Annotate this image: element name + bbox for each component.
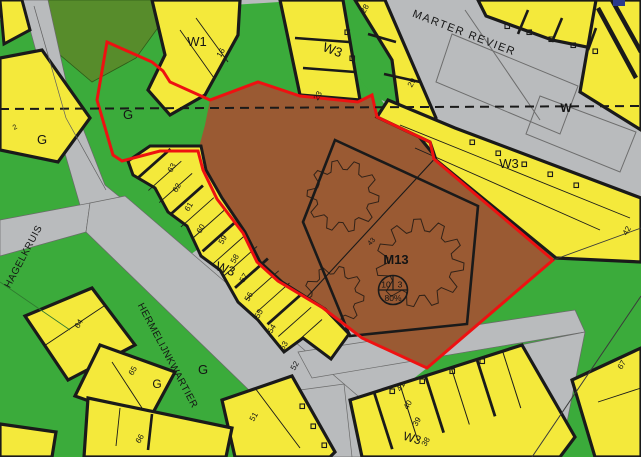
zoning-map: 10 3 80% MARTER REVIERHAGELKRUISHERMELIJ… xyxy=(0,0,641,457)
area-label: W1 xyxy=(187,34,207,49)
area-label: G xyxy=(152,377,161,391)
zone-m13-symbol: 10 3 80% xyxy=(379,276,408,305)
area-label: G xyxy=(198,362,208,377)
ratio-top-left: 10 xyxy=(381,280,391,290)
area-label: W3 xyxy=(499,156,519,171)
map-edge-artifact xyxy=(613,0,625,6)
marker-label: W xyxy=(560,101,572,115)
ratio-top-right: 3 xyxy=(398,280,403,290)
area-label: G xyxy=(37,132,47,147)
ratio-bottom: 80% xyxy=(384,293,401,303)
map-canvas: 10 3 80% MARTER REVIERHAGELKRUISHERMELIJ… xyxy=(0,0,641,457)
area-label: G xyxy=(123,107,133,122)
zone-label: M13 xyxy=(383,252,408,267)
